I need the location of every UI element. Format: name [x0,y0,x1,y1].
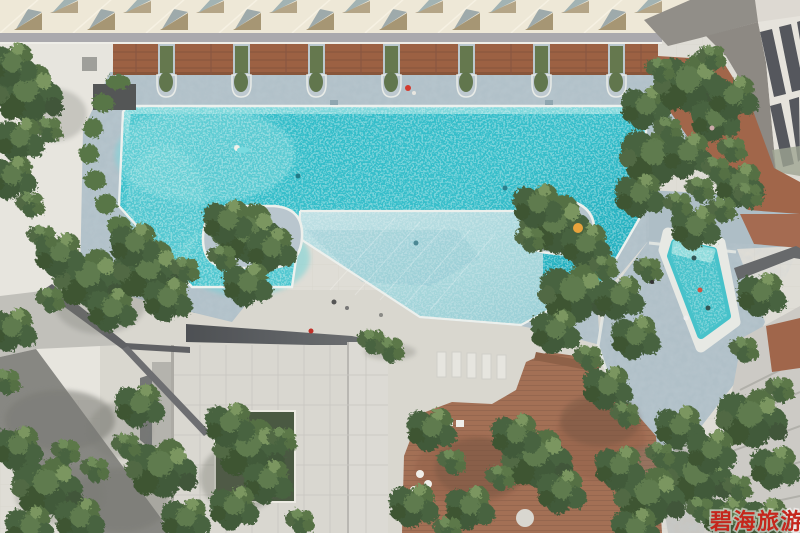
svg-text:碧海旅游: 碧海旅游 [709,509,800,533]
